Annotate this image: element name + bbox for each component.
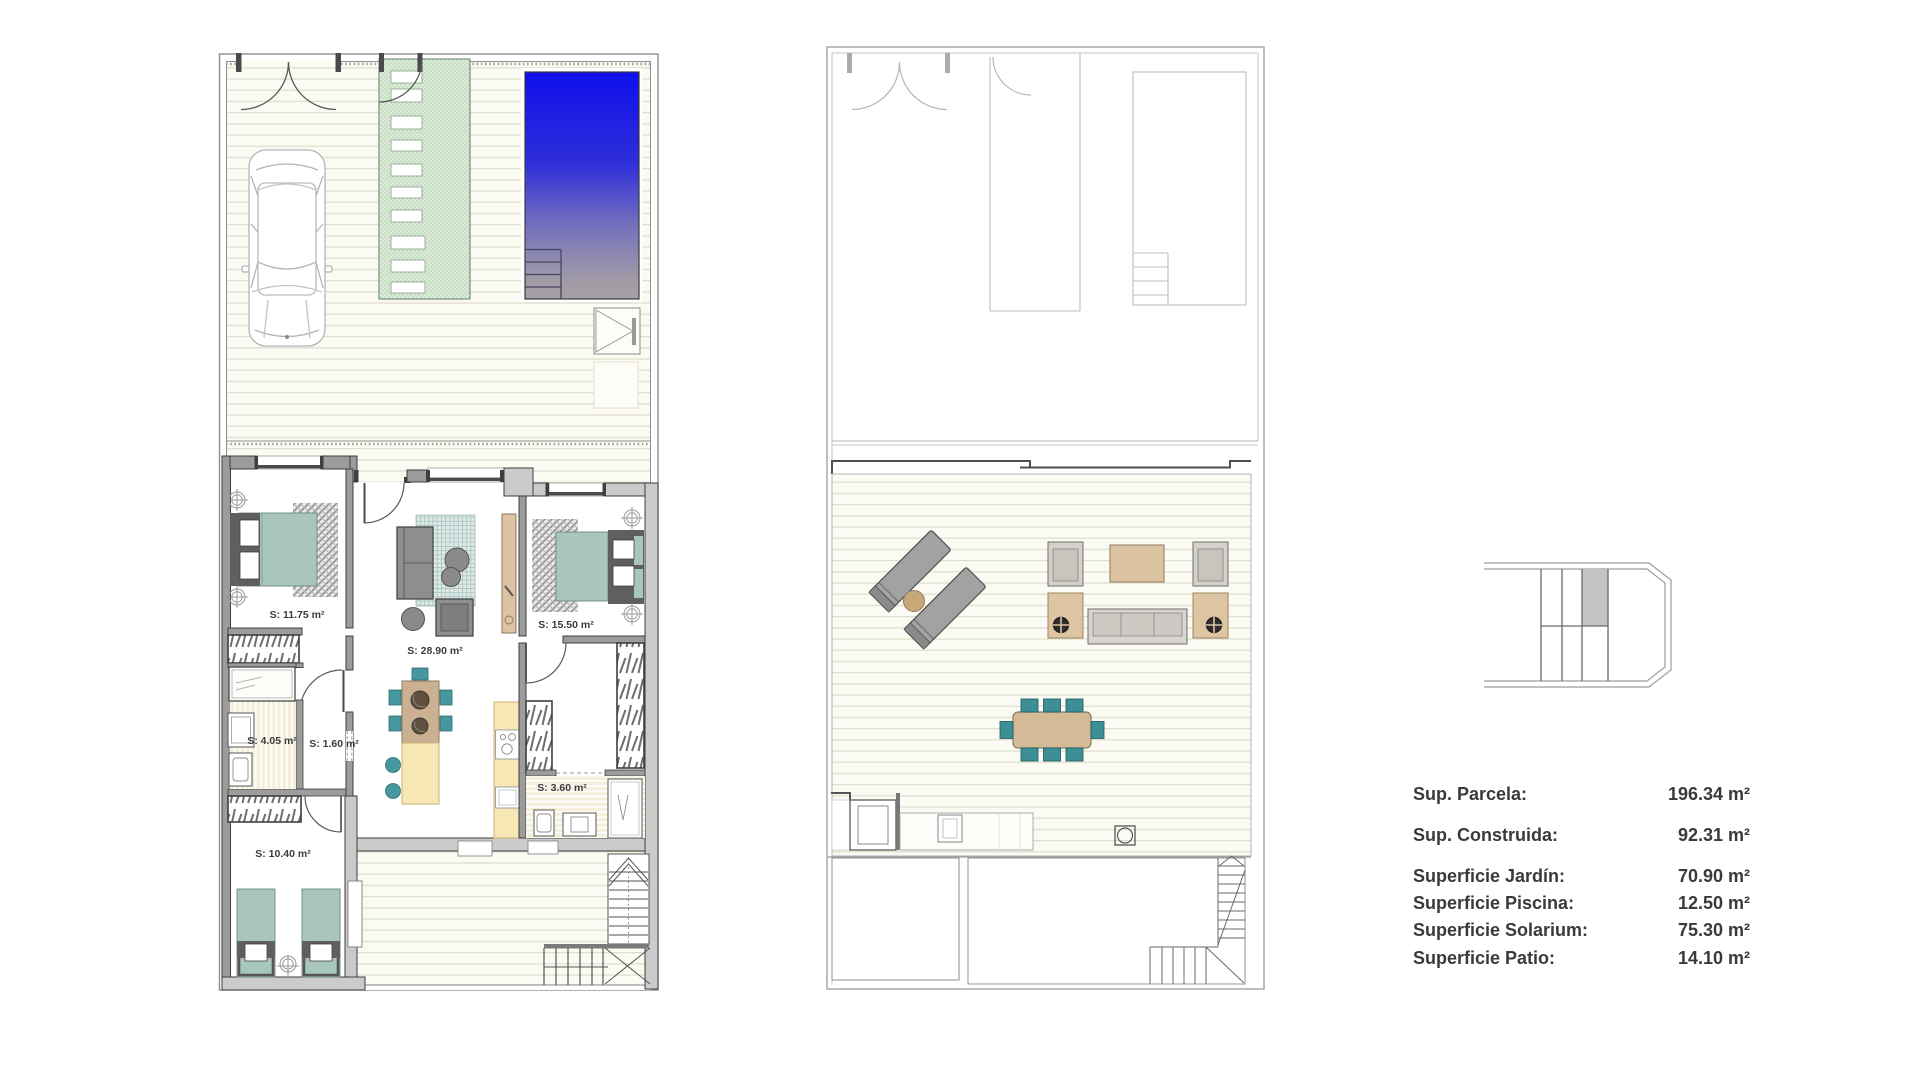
svg-text:Sup. Parcela:: Sup. Parcela:	[1413, 784, 1527, 804]
svg-text:S: 15.50 m²: S: 15.50 m²	[538, 619, 594, 631]
svg-text:75.30 m²: 75.30 m²	[1678, 920, 1750, 940]
svg-text:92.31 m²: 92.31 m²	[1678, 825, 1750, 845]
svg-text:S: 11.75 m²: S: 11.75 m²	[270, 609, 325, 621]
svg-text:14.10 m²: 14.10 m²	[1678, 948, 1750, 968]
svg-text:Superficie Solarium:: Superficie Solarium:	[1413, 920, 1588, 940]
svg-text:S: 4.05 m²: S: 4.05 m²	[247, 735, 297, 747]
svg-text:70.90 m²: 70.90 m²	[1678, 866, 1750, 886]
svg-text:12.50 m²: 12.50 m²	[1678, 893, 1750, 913]
svg-text:S: 28.90 m²: S: 28.90 m²	[407, 645, 463, 657]
svg-text:S: 3.60 m²: S: 3.60 m²	[537, 782, 587, 794]
svg-text:S: 10.40 m²: S: 10.40 m²	[255, 848, 311, 860]
svg-text:Superficie Piscina:: Superficie Piscina:	[1413, 893, 1574, 913]
svg-text:196.34 m²: 196.34 m²	[1668, 784, 1750, 804]
svg-text:Superficie Jardín:: Superficie Jardín:	[1413, 866, 1565, 886]
svg-text:Sup. Construida:: Sup. Construida:	[1413, 825, 1558, 845]
svg-text:S: 1.60 m²: S: 1.60 m²	[309, 738, 359, 750]
svg-text:Superficie Patio:: Superficie Patio:	[1413, 948, 1555, 968]
